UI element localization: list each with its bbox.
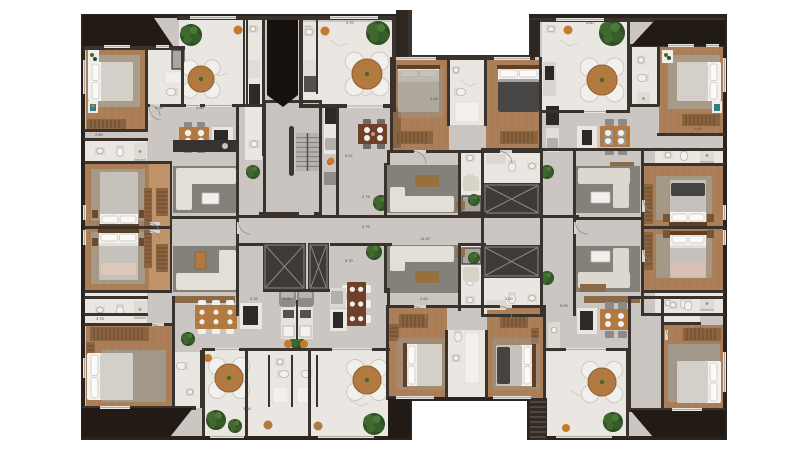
svg-text:2.40: 2.40 xyxy=(694,326,703,331)
svg-text:5.05: 5.05 xyxy=(560,303,569,308)
svg-text:3.90: 3.90 xyxy=(283,296,292,301)
svg-text:2.75: 2.75 xyxy=(362,194,371,199)
svg-text:3.60: 3.60 xyxy=(243,406,252,411)
svg-text:6.70: 6.70 xyxy=(345,258,354,263)
svg-text:6.97: 6.97 xyxy=(345,153,354,158)
svg-text:3.60: 3.60 xyxy=(586,20,595,25)
svg-text:2.75: 2.75 xyxy=(362,224,371,229)
svg-text:2.80: 2.80 xyxy=(95,132,104,137)
svg-text:2.08: 2.08 xyxy=(430,96,439,101)
svg-text:14.97: 14.97 xyxy=(420,236,431,241)
svg-text:5.32: 5.32 xyxy=(250,296,259,301)
svg-text:3.70: 3.70 xyxy=(346,20,355,25)
svg-text:3.75: 3.75 xyxy=(96,316,105,321)
svg-text:3.80: 3.80 xyxy=(196,105,205,110)
svg-text:2.60: 2.60 xyxy=(505,296,514,301)
svg-text:3.00: 3.00 xyxy=(694,126,703,131)
svg-text:1.30: 1.30 xyxy=(155,105,164,110)
svg-text:2.60: 2.60 xyxy=(420,296,429,301)
